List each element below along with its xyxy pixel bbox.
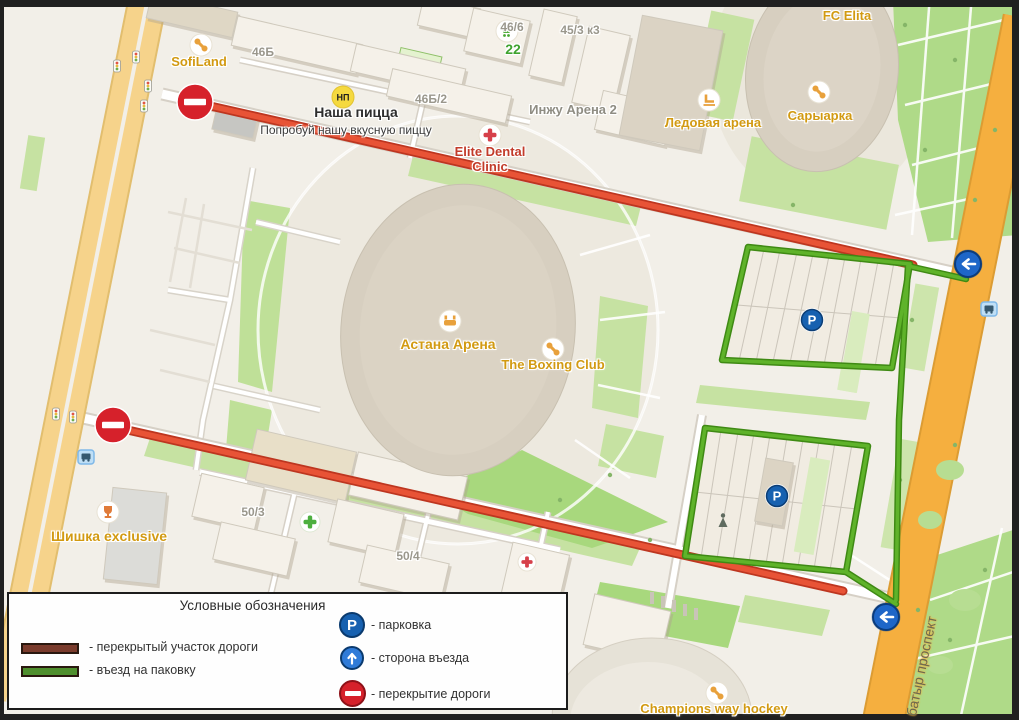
no-entry-sign-icon[interactable] (177, 84, 213, 120)
sofiland-icon[interactable] (190, 34, 212, 56)
poi-label-saryarka[interactable]: Сарыарка (788, 108, 853, 123)
svg-text:P: P (773, 489, 782, 504)
ice-arena-icon[interactable] (698, 89, 720, 111)
poi-label-astana-arena[interactable]: Астана Арена (400, 336, 495, 352)
elite-dental-icon[interactable] (479, 124, 501, 146)
pharmacy-icon[interactable] (300, 512, 320, 532)
poi-label-pizza-subtitle: Попробуй нашу вкусную пиццу (260, 123, 432, 137)
legend-panel: Условные обозначения - перекрытый участо… (7, 592, 568, 710)
poi-label-sofiland[interactable]: SofiLand (171, 54, 227, 69)
poi-label-pizza-title[interactable]: Наша пицца (314, 104, 397, 120)
entry-side-sign-icon[interactable] (954, 250, 983, 279)
legend-label-parking: - парковка (371, 618, 431, 632)
legend-no-entry-icon (339, 680, 366, 707)
no-entry-sign-icon[interactable] (95, 407, 131, 443)
poi-label-ledovaya-arena[interactable]: Ледовая арена (665, 115, 761, 130)
building-label-453k3: 45/3 к3 (560, 23, 599, 37)
saryarka-icon[interactable] (808, 81, 830, 103)
legend-entry-side-icon (340, 646, 364, 670)
legend-parking-icon: P (339, 612, 365, 638)
clinic-icon[interactable] (518, 553, 536, 571)
svg-text:НП: НП (337, 93, 350, 103)
building-label-466: 46/6 (500, 20, 523, 34)
poi-label-boxing-club[interactable]: The Boxing Club (501, 357, 604, 372)
legend-swatch-entry-route (21, 666, 79, 677)
poi-label-inzhu-arena[interactable]: Инжу Арена 2 (529, 102, 617, 117)
parking-sign-icon[interactable]: P (765, 484, 789, 508)
legend-label-no-entry: - перекрытие дороги (371, 687, 491, 701)
svg-text:P: P (808, 313, 817, 328)
parking-sign-icon[interactable]: P (800, 308, 824, 332)
legend-swatch-closed-road (21, 643, 79, 654)
entry-side-sign-icon[interactable] (872, 603, 901, 632)
legend-label-closed-road: - перекрытый участок дороги (89, 640, 258, 654)
astana-arena-icon[interactable] (439, 310, 461, 332)
building-label-504: 50/4 (396, 549, 419, 563)
legend-title: Условные обозначения (9, 598, 496, 613)
shishka-icon[interactable] (97, 501, 119, 523)
map-screenshot[interactable]: НП P P SofiLand 46Б 46/6 45/3 к3 46Б/2 2… (0, 0, 1019, 720)
legend-label-entry-route: - въезд на паковку (89, 663, 196, 677)
poi-label-shop22[interactable]: 22 (505, 41, 521, 57)
legend-label-entry-side: - сторона въезда (371, 651, 469, 665)
poi-label-elite-dental[interactable]: Elite DentalClinic (455, 144, 526, 174)
poi-label-champions[interactable]: Champions way hockey (640, 701, 787, 716)
poi-label-fc-elita[interactable]: FC Elita (823, 8, 871, 23)
building-label-46b2: 46Б/2 (415, 92, 447, 106)
building-label-503: 50/3 (241, 505, 264, 519)
building-label-46b: 46Б (252, 45, 274, 59)
poi-label-shishka[interactable]: Шишка exclusive (51, 528, 167, 544)
